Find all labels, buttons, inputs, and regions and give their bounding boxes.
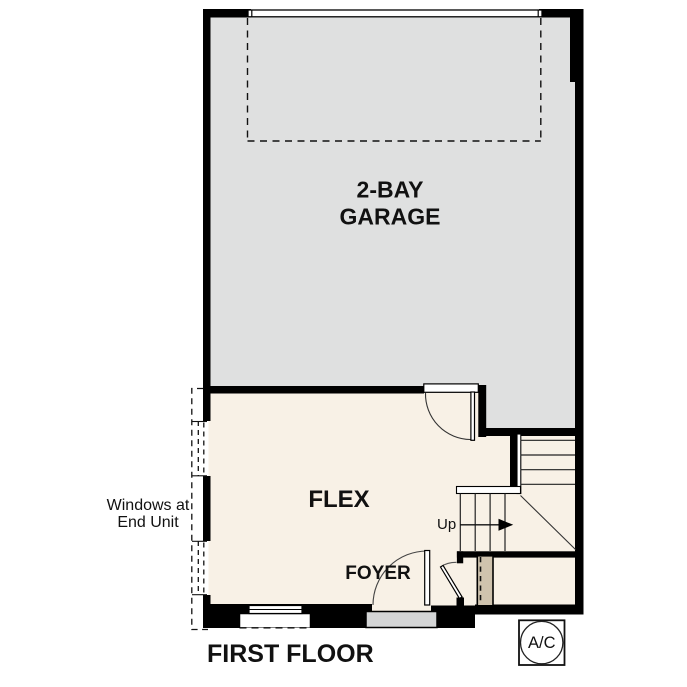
- svg-text:A/C: A/C: [528, 634, 556, 652]
- svg-text:2-BAY: 2-BAY: [357, 177, 424, 203]
- svg-text:FLEX: FLEX: [308, 486, 369, 513]
- svg-text:Windows at: Windows at: [107, 497, 190, 514]
- svg-text:FOYER: FOYER: [345, 563, 411, 584]
- svg-text:FIRST FLOOR: FIRST FLOOR: [207, 640, 374, 668]
- svg-text:Up: Up: [437, 516, 456, 533]
- svg-text:GARAGE: GARAGE: [340, 204, 441, 230]
- svg-text:End Unit: End Unit: [117, 514, 179, 531]
